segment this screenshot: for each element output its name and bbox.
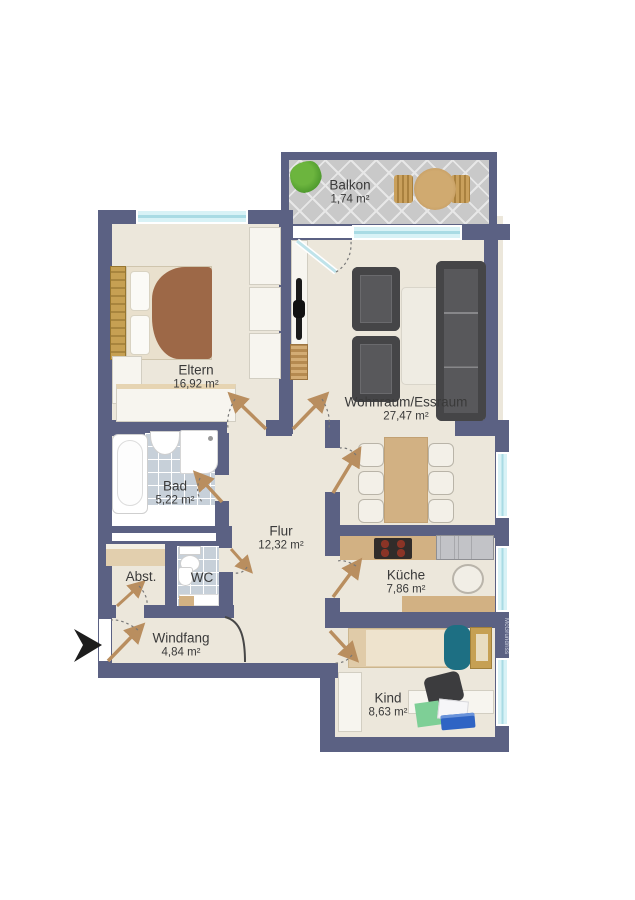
entrance-opening bbox=[99, 619, 111, 661]
label-bad: Bad 5,22 m² bbox=[156, 479, 195, 508]
tv-base bbox=[293, 300, 305, 318]
wc-name: WC bbox=[191, 570, 214, 586]
windfang-name: Windfang bbox=[152, 631, 209, 647]
eltern-name: Eltern bbox=[173, 363, 218, 379]
kitchen-counter-bottom bbox=[402, 596, 495, 612]
eltern-wardrobe-right-2 bbox=[249, 287, 281, 331]
dining-table bbox=[384, 437, 428, 523]
watermark: McGrundriss bbox=[495, 613, 509, 659]
dining-chair-l1 bbox=[358, 443, 384, 467]
kueche-name: Küche bbox=[387, 568, 426, 584]
kind-bed-sheet bbox=[366, 630, 446, 666]
wohnraum-name: Wohnraum/Essraum bbox=[345, 395, 468, 411]
eltern-bed-headboard bbox=[110, 266, 126, 360]
bad-name: Bad bbox=[156, 479, 195, 495]
stove bbox=[374, 538, 412, 559]
bad-area: 5,22 m² bbox=[156, 494, 195, 507]
wohnraum-area: 27,47 m² bbox=[345, 410, 468, 423]
label-flur: Flur 12,32 m² bbox=[258, 524, 303, 553]
wc-box bbox=[179, 596, 194, 606]
window-wohnraum bbox=[352, 225, 462, 240]
balcony-plant bbox=[290, 161, 322, 193]
eltern-wardrobe-right-1 bbox=[249, 227, 281, 285]
bathtub-basin bbox=[117, 440, 143, 506]
window-kind bbox=[496, 658, 509, 726]
wall-bad-right-b bbox=[215, 501, 229, 528]
label-balkon: Balkon 1,74 m² bbox=[329, 178, 370, 207]
dining-chair-r2 bbox=[428, 471, 454, 495]
eltern-bed-pillow-bottom bbox=[130, 315, 150, 355]
kind-name: Kind bbox=[369, 691, 408, 707]
label-wohnraum: Wohnraum/Essraum 27,47 m² bbox=[345, 395, 468, 424]
wall-kueche-kind bbox=[335, 612, 509, 628]
label-kueche: Küche 7,86 m² bbox=[387, 568, 426, 597]
wall-flur-right-b bbox=[325, 492, 340, 556]
kind-bed-headboard-inner bbox=[476, 634, 488, 661]
balkon-name: Balkon bbox=[329, 178, 370, 194]
armchair-2 bbox=[352, 336, 400, 402]
eltern-bed-pillow-top bbox=[130, 271, 150, 311]
abst-wardrobe bbox=[106, 544, 165, 566]
wall-flur-top-pillar bbox=[266, 420, 292, 436]
window-essraum bbox=[496, 452, 509, 518]
kind-bed-blanket-teal bbox=[444, 625, 471, 670]
label-abst: Abst. bbox=[126, 569, 157, 585]
wall-right-upper bbox=[484, 240, 498, 436]
window-eltern bbox=[136, 209, 248, 224]
wall-windfang-top-b bbox=[144, 605, 234, 618]
balcony-chair-left bbox=[394, 175, 413, 203]
kind-area: 8,63 m² bbox=[369, 706, 408, 719]
toilet-tank bbox=[179, 546, 201, 555]
windfang-area: 4,84 m² bbox=[152, 646, 209, 659]
outside-mask bbox=[90, 678, 320, 768]
armchair-1 bbox=[352, 267, 400, 331]
label-kind: Kind 8,63 m² bbox=[369, 691, 408, 720]
balcony-table bbox=[414, 168, 456, 210]
wall-windfang-top-a bbox=[98, 605, 116, 618]
label-eltern: Eltern 16,92 m² bbox=[173, 363, 218, 392]
flur-name: Flur bbox=[258, 524, 303, 540]
balcony-wall-top bbox=[281, 152, 497, 160]
floor-plan: Balkon 1,74 m² Eltern 16,92 m² Wohnraum/… bbox=[0, 0, 635, 900]
balkon-area: 1,74 m² bbox=[329, 193, 370, 206]
kitchen-sink bbox=[436, 535, 494, 560]
kitchen-round-table bbox=[452, 564, 484, 594]
dining-chair-l3 bbox=[358, 499, 384, 523]
window-kueche bbox=[496, 546, 509, 612]
shower-drain bbox=[208, 436, 213, 441]
dining-chair-r3 bbox=[428, 499, 454, 523]
kind-folder-blue bbox=[440, 713, 475, 731]
wall-niche bbox=[112, 533, 216, 541]
wall-abst-wc-divider bbox=[165, 548, 177, 608]
wall-kind-bottom bbox=[320, 737, 509, 752]
flur-area: 12,32 m² bbox=[258, 539, 303, 552]
eltern-bed-blanket bbox=[152, 267, 212, 359]
dining-chair-l2 bbox=[358, 471, 384, 495]
abst-name: Abst. bbox=[126, 569, 157, 585]
dining-chair-r1 bbox=[428, 443, 454, 467]
label-wc: WC bbox=[191, 570, 214, 586]
kind-wardrobe bbox=[338, 672, 362, 732]
wall-bottom-windfang bbox=[98, 663, 338, 678]
basket bbox=[290, 344, 308, 380]
label-windfang: Windfang 4,84 m² bbox=[152, 631, 209, 660]
balcony-door-opening bbox=[293, 226, 352, 238]
eltern-area: 16,92 m² bbox=[173, 378, 218, 391]
kueche-area: 7,86 m² bbox=[387, 583, 426, 596]
eltern-wardrobe-right-3 bbox=[249, 333, 281, 379]
wall-flur-right-a bbox=[325, 420, 340, 448]
balcony-wall-right bbox=[489, 152, 497, 230]
